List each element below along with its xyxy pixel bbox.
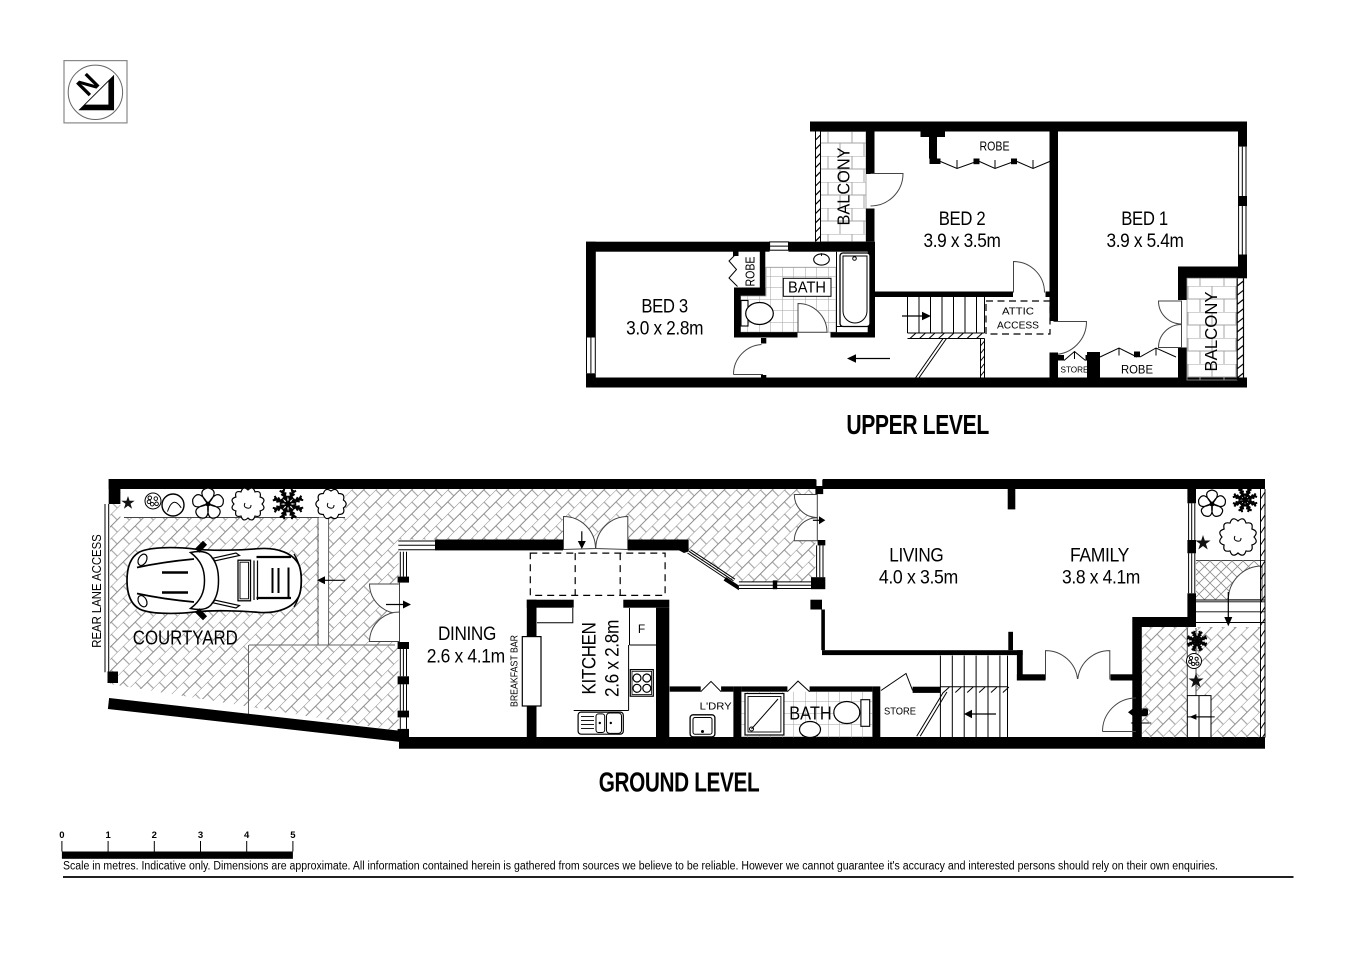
svg-text:FAMILY: FAMILY: [1070, 545, 1129, 567]
svg-text:BED 1: BED 1: [1121, 208, 1168, 230]
svg-text:3.9 x 5.4m: 3.9 x 5.4m: [1107, 230, 1184, 252]
svg-text:ROBE: ROBE: [980, 139, 1010, 154]
svg-text:L'DRY: L'DRY: [700, 701, 732, 713]
svg-text:3: 3: [198, 830, 203, 841]
svg-text:BREAKFAST BAR: BREAKFAST BAR: [509, 635, 521, 707]
svg-text:2.6 x 2.8m: 2.6 x 2.8m: [602, 620, 624, 697]
svg-text:BED 2: BED 2: [939, 208, 986, 230]
svg-text:LIVING: LIVING: [889, 545, 943, 567]
svg-text:KITCHEN: KITCHEN: [579, 623, 601, 695]
svg-text:BED 3: BED 3: [641, 296, 688, 318]
svg-text:2: 2: [152, 830, 157, 841]
svg-text:ROBE: ROBE: [742, 256, 757, 286]
svg-text:BATH: BATH: [789, 703, 832, 724]
svg-text:ROBE: ROBE: [1121, 365, 1153, 377]
svg-text:COURTYARD: COURTYARD: [133, 628, 238, 650]
svg-text:STORE: STORE: [884, 706, 916, 718]
svg-text:2.6 x 4.1m: 2.6 x 4.1m: [427, 646, 505, 668]
svg-text:4: 4: [244, 830, 250, 841]
svg-text:ACCESS: ACCESS: [997, 321, 1039, 332]
svg-text:GROUND LEVEL: GROUND LEVEL: [599, 767, 760, 798]
svg-text:STORE: STORE: [1061, 365, 1089, 375]
svg-text:Scale in metres. Indicative on: Scale in metres. Indicative only. Dimens…: [63, 861, 1218, 873]
svg-text:0: 0: [59, 830, 64, 841]
svg-text:3.9 x 3.5m: 3.9 x 3.5m: [924, 230, 1001, 252]
svg-text:3.8 x 4.1m: 3.8 x 4.1m: [1062, 567, 1140, 589]
svg-text:BATH: BATH: [788, 280, 826, 297]
svg-text:DINING: DINING: [438, 623, 496, 645]
svg-text:ATTIC: ATTIC: [1002, 307, 1034, 318]
svg-text:REAR LANE ACCESS: REAR LANE ACCESS: [89, 534, 104, 648]
svg-text:4.0 x 3.5m: 4.0 x 3.5m: [879, 567, 958, 589]
svg-text:F: F: [638, 622, 645, 636]
svg-text:3.0 x 2.8m: 3.0 x 2.8m: [626, 318, 703, 340]
svg-text:UPPER LEVEL: UPPER LEVEL: [846, 409, 989, 440]
svg-text:1: 1: [105, 830, 111, 841]
svg-text:BALCONY: BALCONY: [1201, 291, 1221, 371]
svg-text:5: 5: [290, 830, 296, 841]
svg-text:BALCONY: BALCONY: [833, 147, 853, 225]
